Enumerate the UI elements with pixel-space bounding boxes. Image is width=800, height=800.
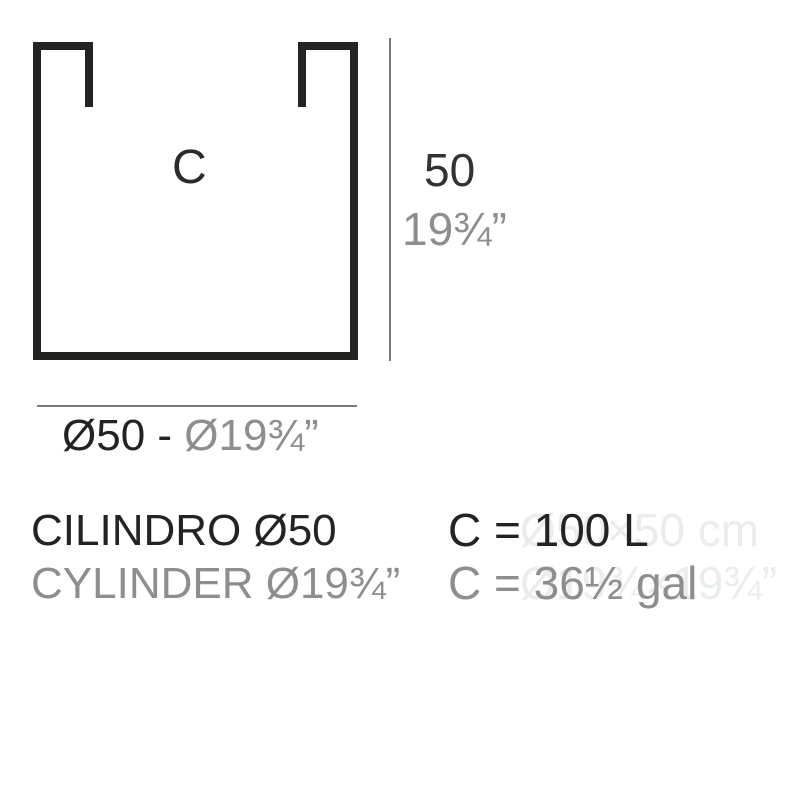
diameter-value-cm: Ø50 - (62, 411, 184, 460)
diameter-value-inches: Ø19¾” (184, 411, 319, 460)
vessel-rim-left (33, 42, 93, 50)
vessel-inner-lip-left (85, 42, 93, 107)
capacity-gallons: C = 36½ gal (448, 560, 697, 606)
height-dimension-line (389, 38, 391, 361)
height-value-cm: 50 (424, 147, 475, 193)
product-name-es: CILINDRO Ø50 (31, 509, 337, 553)
diameter-label: Ø50 - Ø19¾” (62, 414, 319, 458)
height-value-inches: 19¾” (402, 206, 507, 252)
diameter-dimension-line (37, 405, 357, 407)
vessel-rim-right (298, 42, 358, 50)
vessel-right-wall (350, 42, 358, 360)
vessel-base (33, 352, 358, 360)
capacity-letter-label: C (172, 144, 208, 192)
product-name-en: CYLINDER Ø19¾” (31, 562, 400, 606)
dimension-sheet: C 50 19¾” Ø50 - Ø19¾” Ø50×50 cm Ø19¾×19¾… (0, 0, 800, 800)
vessel-inner-lip-right (298, 42, 306, 107)
vessel-left-wall (33, 42, 41, 360)
capacity-liters: C = 100 L (448, 507, 649, 553)
